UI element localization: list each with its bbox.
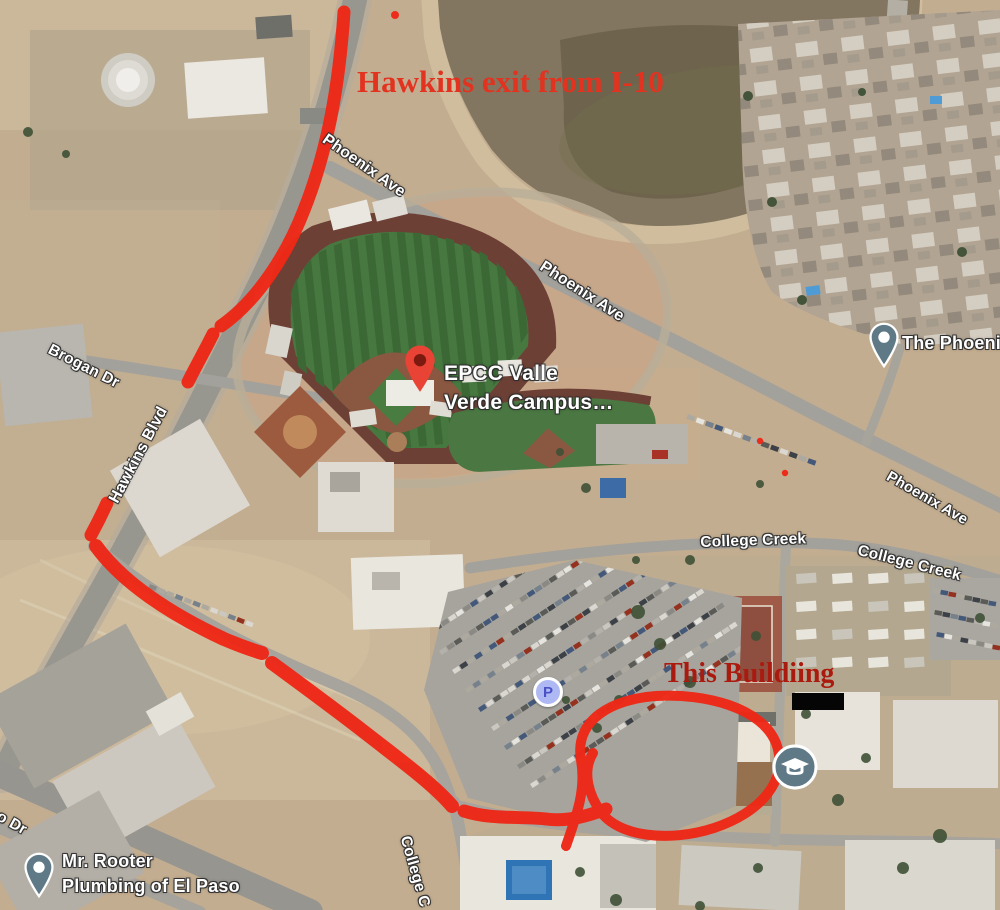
mr-rooter-label[interactable]: Mr. RooterPlumbing of El Paso — [62, 849, 240, 899]
neighborhood — [738, 10, 1000, 346]
parking-letter: P — [543, 684, 553, 701]
gray-pin-icon — [22, 852, 56, 898]
exit-annotation-text: Hawkins exit from I-10 — [357, 64, 664, 100]
satellite-imagery — [0, 0, 1000, 910]
map-viewport[interactable]: Phoenix AvePhoenix AvePhoenix AveBrogan … — [0, 0, 1000, 910]
graduation-cap-icon — [769, 744, 821, 806]
building-annotation-text: This Buildiing — [664, 658, 834, 690]
red-dot — [757, 438, 763, 444]
epcc-place-pin[interactable] — [402, 344, 438, 399]
school-place-pin[interactable] — [769, 744, 821, 811]
redaction-bar — [792, 693, 844, 710]
epcc-campus-label[interactable]: EPCC ValleVerde Campus… — [444, 359, 614, 418]
parking-badge[interactable]: P — [533, 677, 563, 707]
street-label-college-creek: College Creek — [700, 530, 807, 552]
the-phoenix-place-pin[interactable] — [867, 322, 901, 373]
red-dot — [782, 470, 788, 476]
mr-rooter-place-pin[interactable] — [22, 852, 56, 903]
red-pin-icon — [402, 344, 438, 394]
the-phoenix-label[interactable]: The Phoenix — [902, 331, 1000, 356]
red-dot — [391, 11, 399, 19]
gray-pin-icon — [867, 322, 901, 368]
